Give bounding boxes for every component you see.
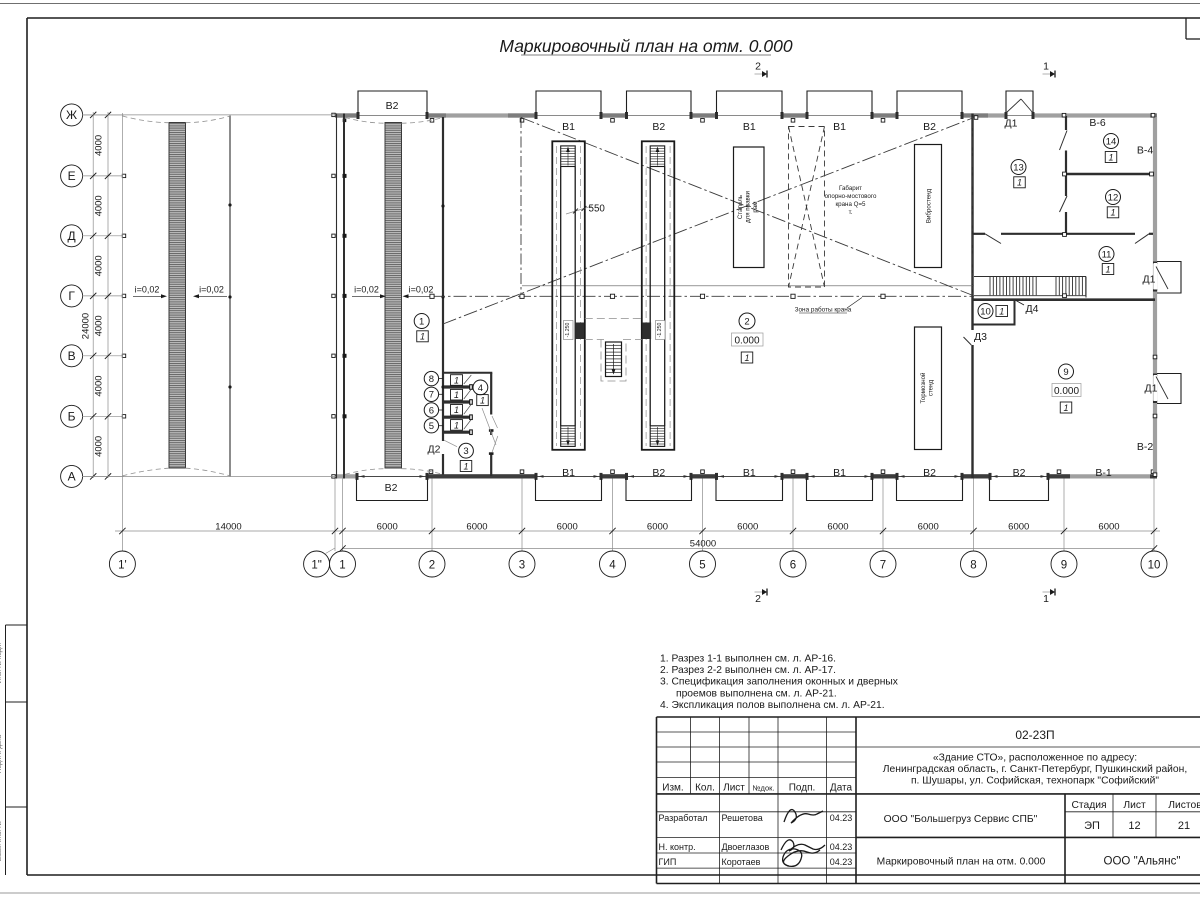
svg-text:4000: 4000	[94, 195, 105, 216]
svg-text:Взам. инв. №: Взам. инв. №	[0, 821, 3, 861]
svg-text:В-4: В-4	[1137, 145, 1154, 157]
svg-text:6000: 6000	[377, 521, 398, 532]
svg-text:Д2: Д2	[428, 444, 441, 456]
svg-text:В: В	[68, 349, 76, 363]
svg-text:6000: 6000	[827, 521, 848, 532]
svg-text:Г: Г	[68, 289, 75, 303]
svg-text:6000: 6000	[557, 521, 578, 532]
svg-text:1: 1	[1105, 264, 1110, 274]
svg-text:В2: В2	[1013, 467, 1026, 479]
svg-text:Тормозной: Тормозной	[920, 372, 927, 403]
svg-text:В1: В1	[562, 467, 575, 479]
svg-text:2: 2	[744, 316, 749, 327]
svg-text:п. Шушары, ул. Софийская, техн: п. Шушары, ул. Софийская, технопарк "Соф…	[911, 775, 1159, 787]
svg-text:i=0,02: i=0,02	[354, 284, 379, 294]
svg-text:1": 1"	[311, 559, 321, 571]
svg-text:2: 2	[429, 559, 435, 571]
svg-text:9: 9	[1061, 559, 1067, 571]
svg-text:Д3: Д3	[974, 331, 987, 343]
svg-text:Инв. № подл.: Инв. № подл.	[0, 643, 3, 684]
svg-text:4000: 4000	[94, 436, 105, 457]
svg-text:1: 1	[454, 390, 459, 400]
svg-text:Лист: Лист	[1123, 800, 1146, 811]
svg-text:6000: 6000	[1008, 521, 1029, 532]
svg-text:10: 10	[980, 306, 991, 317]
svg-text:ООО "Большегруз Сервис СПБ": ООО "Большегруз Сервис СПБ"	[884, 814, 1038, 825]
svg-text:24000: 24000	[81, 313, 92, 339]
svg-text:1: 1	[420, 332, 425, 342]
svg-text:Маркировочный план на отм. 0.0: Маркировочный план на отм. 0.000	[499, 36, 792, 56]
svg-text:1': 1'	[118, 559, 127, 571]
svg-text:10: 10	[1148, 559, 1161, 571]
svg-text:6000: 6000	[737, 521, 758, 532]
svg-text:Дата: Дата	[830, 782, 853, 793]
svg-text:8: 8	[429, 374, 434, 385]
svg-text:1. Разрез 1-1 выполнен см. л.: 1. Разрез 1-1 выполнен см. л. АР-16.	[660, 654, 836, 665]
svg-text:04.23: 04.23	[830, 842, 853, 852]
svg-text:В-1: В-1	[1095, 467, 1112, 479]
svg-text:Двоеглазов: Двоеглазов	[722, 842, 770, 852]
svg-text:11: 11	[1102, 249, 1112, 260]
svg-text:04.23: 04.23	[830, 813, 853, 823]
svg-text:i=0,02: i=0,02	[199, 284, 224, 294]
svg-text:Стадия: Стадия	[1071, 800, 1106, 811]
svg-text:550: 550	[589, 204, 606, 215]
svg-text:В2: В2	[386, 100, 399, 112]
svg-text:6: 6	[429, 405, 434, 416]
svg-text:1: 1	[454, 420, 459, 430]
svg-text:А: А	[68, 470, 76, 484]
svg-text:Зона работы крана: Зона работы крана	[795, 306, 852, 314]
svg-text:21: 21	[1178, 820, 1190, 832]
svg-text:В2: В2	[923, 467, 936, 479]
svg-text:1: 1	[419, 316, 424, 327]
svg-text:5: 5	[429, 421, 434, 432]
svg-text:проемов выполнена см. л. АР-21: проемов выполнена см. л. АР-21.	[676, 688, 837, 699]
svg-text:В1: В1	[833, 467, 846, 479]
svg-text:1: 1	[1017, 178, 1022, 188]
svg-text:ООО "Альянс": ООО "Альянс"	[1104, 856, 1181, 868]
svg-text:2: 2	[755, 61, 761, 73]
svg-text:1: 1	[1108, 152, 1113, 162]
svg-text:9: 9	[1063, 367, 1068, 378]
svg-text:Подп. и дата: Подп. и дата	[0, 734, 3, 773]
svg-text:Ленинградская область, г. Санк: Ленинградская область, г. Санкт-Петербур…	[883, 763, 1187, 775]
svg-text:В2: В2	[652, 467, 665, 479]
svg-text:№док.: №док.	[753, 783, 775, 792]
svg-text:В2: В2	[652, 121, 665, 133]
svg-text:4000: 4000	[94, 255, 105, 276]
svg-text:1: 1	[999, 306, 1004, 316]
svg-text:1: 1	[1043, 61, 1049, 73]
svg-text:04.23: 04.23	[830, 857, 853, 867]
svg-text:6000: 6000	[918, 521, 939, 532]
svg-text:В2: В2	[385, 482, 398, 494]
svg-text:Решетова: Решетова	[722, 813, 763, 823]
svg-text:В1: В1	[833, 121, 846, 133]
svg-text:Н. контр.: Н. контр.	[659, 842, 696, 852]
svg-text:1: 1	[454, 375, 459, 385]
svg-text:стенд: стенд	[928, 379, 935, 396]
svg-text:Д1: Д1	[1005, 118, 1018, 130]
svg-text:1: 1	[454, 405, 459, 415]
svg-text:Листов: Листов	[1168, 800, 1200, 811]
svg-text:Стапель: Стапель	[737, 195, 744, 219]
svg-text:Маркировочный план на отм. 0.0: Маркировочный план на отм. 0.000	[877, 857, 1046, 868]
svg-text:7: 7	[429, 390, 434, 401]
svg-text:1: 1	[1063, 403, 1068, 413]
svg-text:1: 1	[1043, 593, 1049, 605]
svg-text:Б: Б	[68, 410, 76, 424]
svg-text:4000: 4000	[94, 375, 105, 396]
svg-text:Лист: Лист	[723, 782, 745, 793]
svg-text:Вибростенд: Вибростенд	[926, 188, 933, 223]
svg-text:4: 4	[609, 559, 616, 571]
svg-text:Е: Е	[68, 169, 76, 183]
svg-text:4000: 4000	[94, 135, 105, 156]
svg-text:ЭП: ЭП	[1084, 820, 1100, 832]
svg-text:6000: 6000	[1098, 521, 1119, 532]
svg-text:Разработал: Разработал	[659, 813, 708, 823]
svg-text:1: 1	[480, 396, 485, 406]
svg-text:1: 1	[1110, 208, 1115, 218]
svg-text:02-23П: 02-23П	[1015, 728, 1054, 742]
svg-text:В-2: В-2	[1137, 441, 1154, 453]
svg-text:1: 1	[463, 461, 468, 471]
svg-text:Д1: Д1	[1145, 383, 1158, 395]
svg-text:i=0,02: i=0,02	[409, 284, 434, 294]
svg-text:6000: 6000	[647, 521, 668, 532]
svg-text:Д4: Д4	[1026, 303, 1039, 315]
svg-text:В1: В1	[562, 121, 575, 133]
svg-text:8: 8	[970, 559, 976, 571]
svg-text:ГИП: ГИП	[659, 857, 677, 867]
svg-text:рам: рам	[752, 201, 759, 212]
svg-text:i=0,02: i=0,02	[135, 284, 160, 294]
svg-text:В-6: В-6	[1089, 117, 1106, 129]
svg-text:5: 5	[699, 559, 705, 571]
svg-text:6: 6	[790, 559, 796, 571]
svg-text:12: 12	[1128, 820, 1140, 832]
svg-text:3. Спецификация заполнения око: 3. Спецификация заполнения оконных и две…	[660, 676, 899, 688]
svg-text:4: 4	[478, 383, 483, 394]
svg-text:1: 1	[744, 353, 749, 363]
svg-text:Подп.: Подп.	[789, 782, 816, 793]
svg-text:13: 13	[1013, 162, 1024, 173]
svg-text:14: 14	[1106, 136, 1117, 147]
svg-text:4. Экспликация полов выполнена: 4. Экспликация полов выполнена см. л. АР…	[660, 700, 885, 711]
svg-text:3: 3	[463, 446, 468, 457]
svg-text:4000: 4000	[94, 315, 105, 336]
svg-text:Изм.: Изм.	[662, 782, 683, 793]
svg-text:0.000: 0.000	[1054, 386, 1079, 397]
svg-text:«Здание СТО», расположенное по: «Здание СТО», расположенное по адресу:	[933, 753, 1137, 764]
svg-text:2: 2	[755, 593, 761, 605]
svg-text:В2: В2	[923, 121, 936, 133]
svg-text:6000: 6000	[466, 521, 487, 532]
svg-text:В1: В1	[743, 121, 756, 133]
svg-text:В1: В1	[743, 467, 756, 479]
svg-text:3: 3	[519, 559, 525, 571]
svg-text:Коротаев: Коротаев	[722, 857, 761, 867]
svg-text:2. Разрез 2-2 выполнен см. л.: 2. Разрез 2-2 выполнен см. л. АР-17.	[660, 665, 836, 676]
svg-text:Д: Д	[68, 229, 76, 243]
svg-text:12: 12	[1108, 192, 1119, 203]
svg-text:54000: 54000	[690, 538, 716, 549]
svg-text:Д1: Д1	[1143, 274, 1156, 286]
svg-text:-1.250: -1.250	[657, 323, 663, 338]
svg-text:-1.250: -1.250	[565, 323, 571, 338]
svg-text:Ж: Ж	[66, 108, 77, 122]
svg-text:для правки: для правки	[745, 190, 752, 223]
svg-text:0.000: 0.000	[734, 335, 759, 346]
svg-text:1: 1	[339, 559, 345, 571]
svg-text:Кол.: Кол.	[695, 782, 715, 793]
svg-text:7: 7	[880, 559, 886, 571]
svg-text:14000: 14000	[215, 521, 241, 532]
